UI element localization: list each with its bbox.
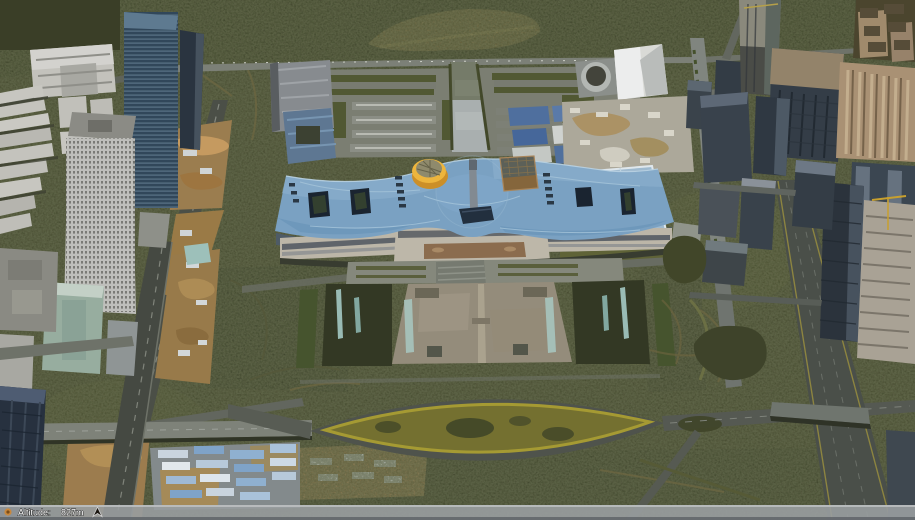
svg-text:Altitude:: Altitude: (18, 508, 51, 518)
svg-text:827m: 827m (61, 508, 84, 518)
